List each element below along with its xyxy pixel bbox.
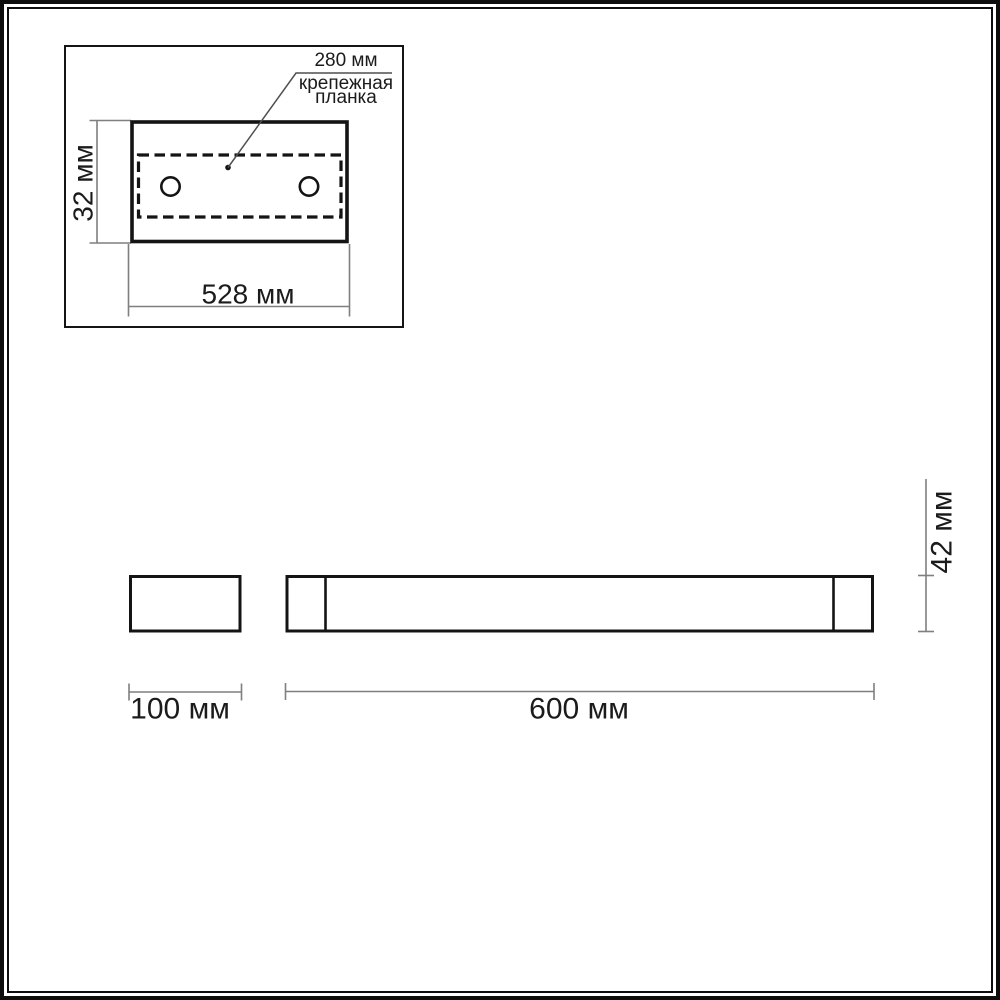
top-view-width-dimension-label: 528 мм bbox=[202, 279, 295, 308]
mounting-hole-left bbox=[161, 177, 179, 195]
top-view-height-dimension-label: 32 мм bbox=[68, 144, 97, 221]
callout-label: крепежная планка bbox=[299, 77, 393, 105]
side-view-depth-dimension-label: 100 мм bbox=[130, 693, 230, 725]
mounting-hole-right bbox=[300, 177, 318, 195]
side-view-outline bbox=[131, 577, 241, 632]
front-view-length-dimension-label: 600 мм bbox=[529, 693, 629, 725]
front-view-outline bbox=[287, 577, 873, 632]
page: 280 мм крепежная планка 32 мм 528 мм 100… bbox=[0, 0, 1000, 1000]
hole-pitch-dimension-label: 280 мм bbox=[314, 51, 377, 71]
front-view-height-dimension-label: 42 мм bbox=[926, 491, 958, 574]
technical-drawing bbox=[0, 0, 1000, 1000]
